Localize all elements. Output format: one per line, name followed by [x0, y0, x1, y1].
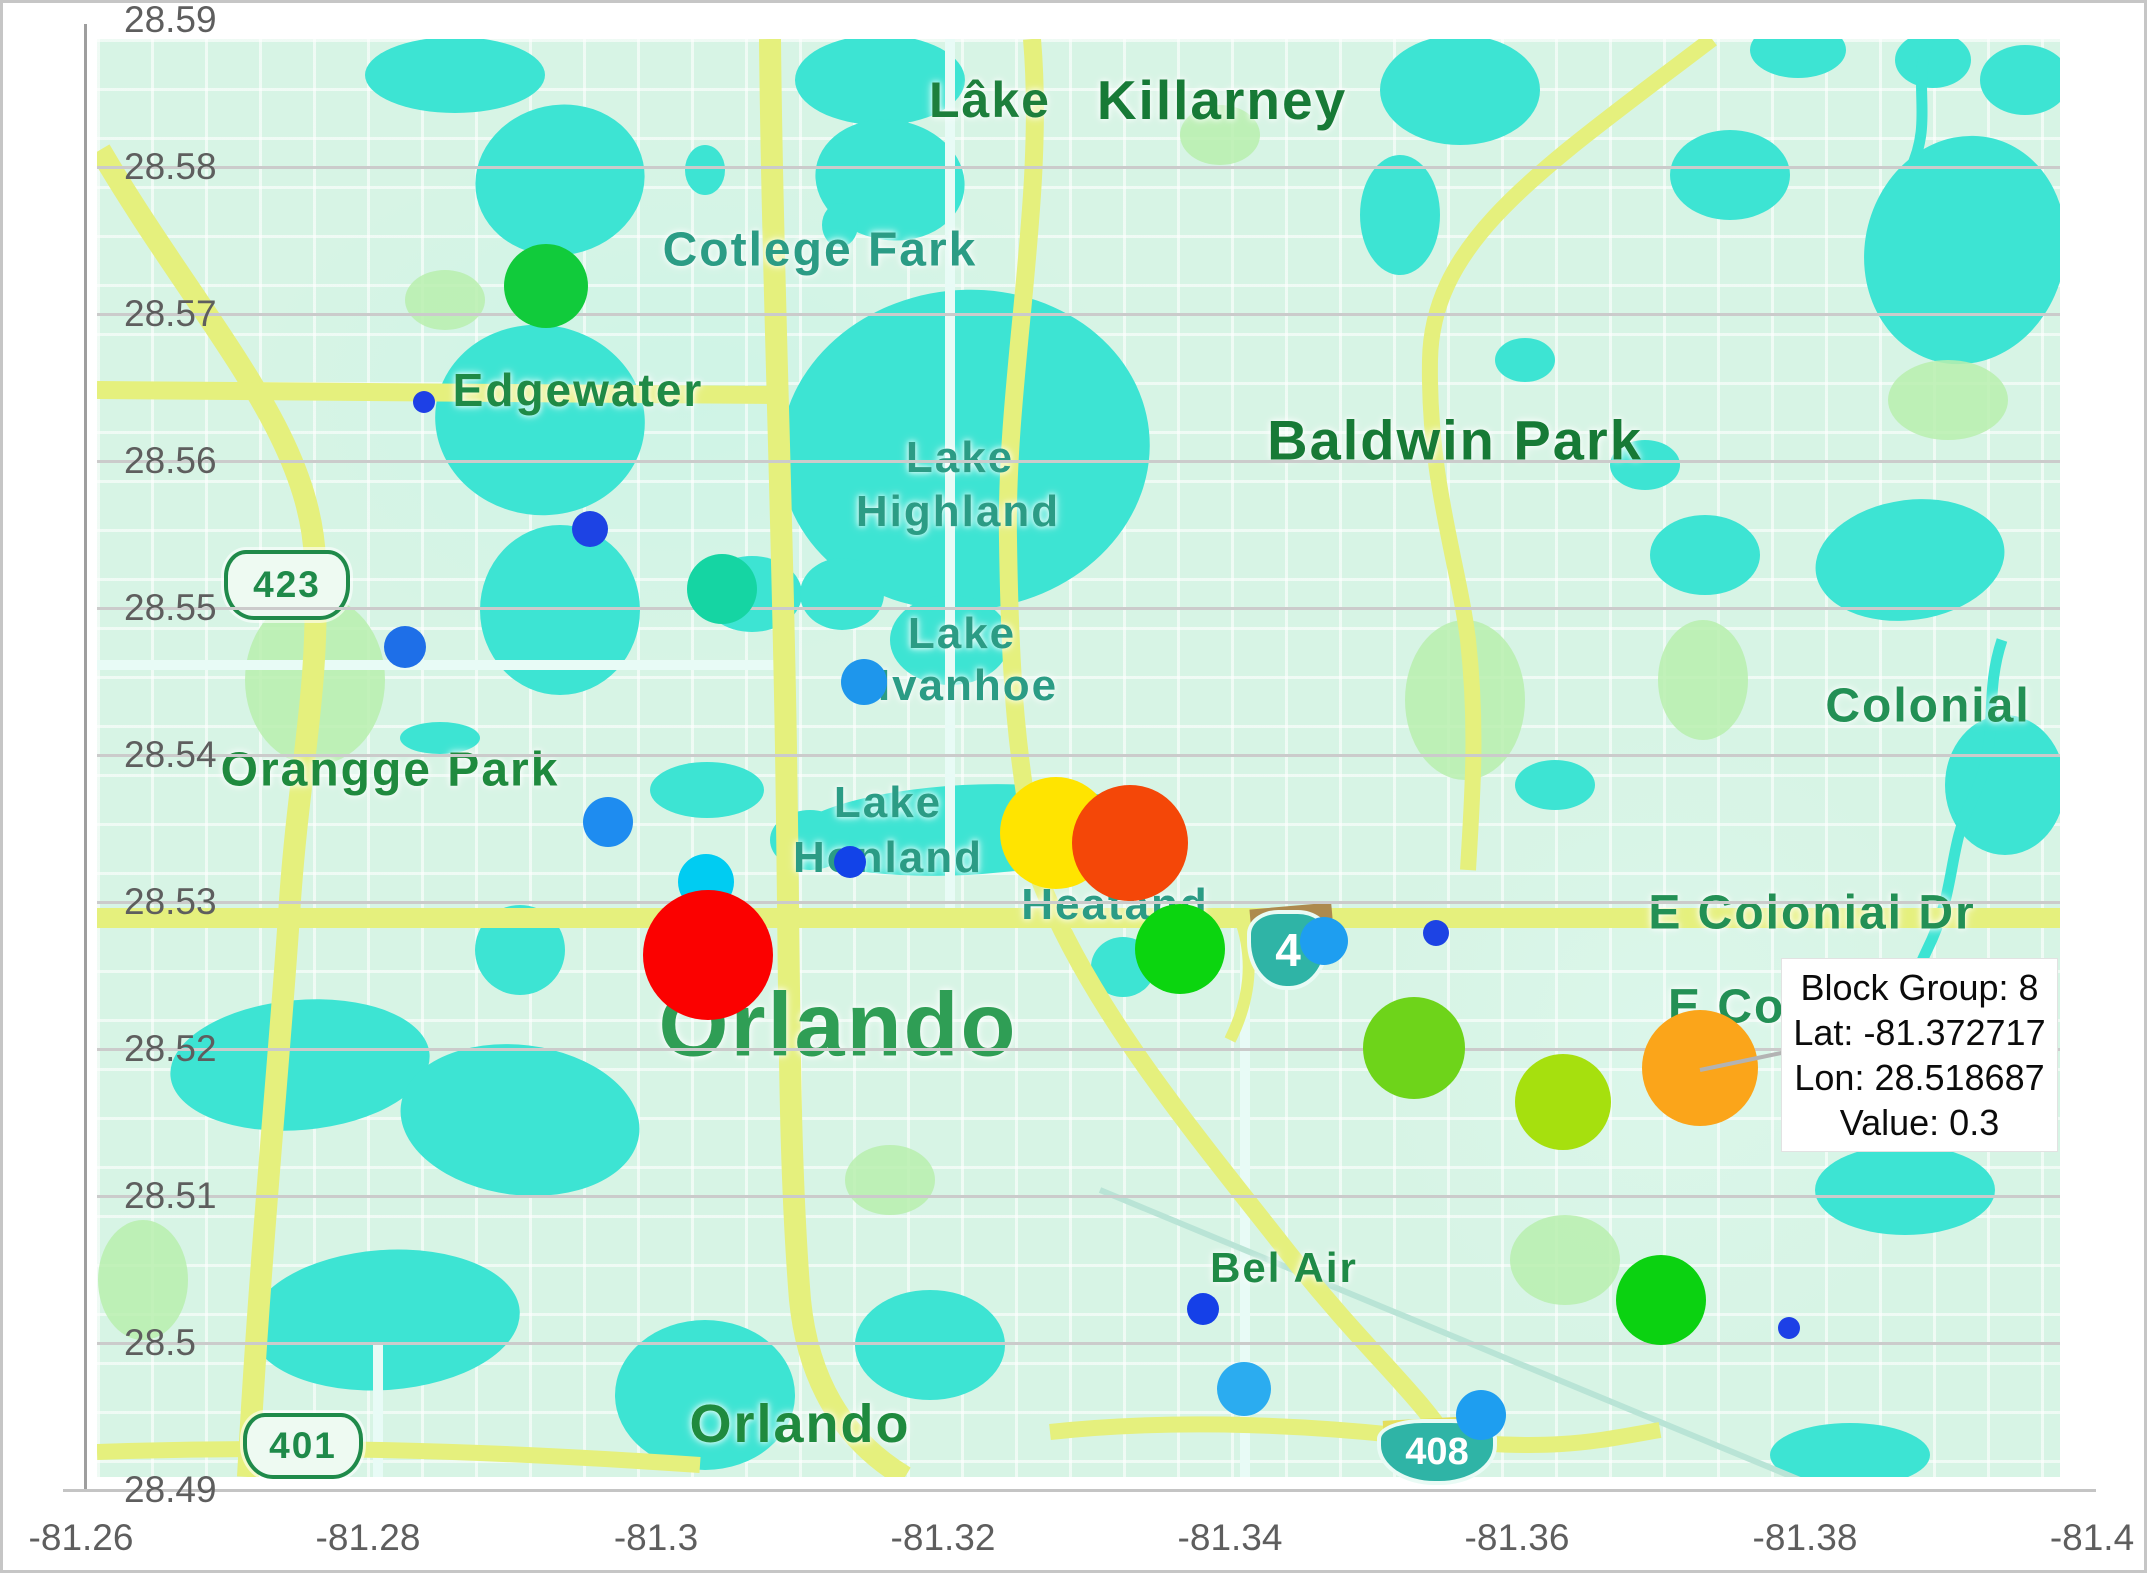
tooltip-block-group: Block Group: 8 — [1800, 970, 2038, 1006]
x-tick-label: -81.38 — [1753, 1517, 1858, 1559]
map-label: Lake — [834, 778, 942, 828]
figure: LâkeKillarneyCotlege FarkEdgewaterBaldwi… — [0, 0, 2147, 1573]
y-tick-label: 28.55 — [124, 587, 217, 629]
map-label: Lâke — [929, 71, 1051, 129]
data-point[interactable] — [1072, 785, 1188, 901]
data-point[interactable] — [1616, 1255, 1706, 1345]
tooltip: Block Group: 8 Lat: -81.372717 Lon: 28.5… — [1781, 958, 2058, 1152]
map-label: Bel Air — [1210, 1244, 1358, 1292]
gridline — [97, 313, 2060, 316]
y-tick-label: 28.57 — [124, 293, 217, 335]
map-label: Edgewater — [453, 363, 704, 417]
gridline — [97, 1195, 2060, 1198]
data-point[interactable] — [1217, 1362, 1271, 1416]
map-label: Cotlege Fark — [663, 223, 978, 278]
tooltip-lon: Lon: 28.518687 — [1794, 1060, 2044, 1096]
data-point[interactable] — [834, 846, 866, 878]
y-tick-label: 28.59 — [124, 0, 217, 41]
x-tick-label: -81.28 — [316, 1517, 421, 1559]
data-point[interactable] — [1778, 1317, 1800, 1339]
x-tick-label: -81.36 — [1465, 1517, 1570, 1559]
y-tick-label: 28.51 — [124, 1175, 217, 1217]
gridline — [97, 1342, 2060, 1345]
x-tick-label: -81.32 — [891, 1517, 996, 1559]
parks-layer — [98, 105, 2008, 1340]
gridline — [97, 901, 2060, 904]
data-point[interactable] — [687, 554, 757, 624]
gridline — [97, 460, 2060, 463]
map-label: Highland — [856, 487, 1060, 537]
data-point[interactable] — [583, 797, 633, 847]
y-tick-label: 28.56 — [124, 440, 217, 482]
y-axis-line — [84, 24, 87, 1491]
x-tick-label: -81.4 — [2050, 1517, 2134, 1559]
data-point[interactable] — [1135, 904, 1225, 994]
gridline — [97, 1048, 2060, 1051]
data-point[interactable] — [1423, 920, 1449, 946]
data-point[interactable] — [572, 511, 608, 547]
y-tick-label: 28.54 — [124, 734, 217, 776]
x-tick-label: -81.34 — [1178, 1517, 1283, 1559]
y-tick-label: 28.49 — [124, 1469, 217, 1511]
map-label: Colonial — [1825, 679, 2030, 734]
data-point[interactable] — [413, 391, 435, 413]
gridline — [97, 754, 2060, 757]
map-label: Orangge Park — [221, 743, 560, 798]
data-point[interactable] — [1187, 1293, 1219, 1325]
tooltip-lat: Lat: -81.372717 — [1793, 1015, 2045, 1051]
map-label: Lake — [908, 609, 1016, 659]
gridline — [97, 607, 2060, 610]
y-tick-label: 28.53 — [124, 881, 217, 923]
gridline — [97, 166, 2060, 169]
data-point[interactable] — [1300, 917, 1348, 965]
y-tick-label: 28.5 — [124, 1322, 196, 1364]
x-tick-label: -81.3 — [614, 1517, 698, 1559]
route-shield-401: 401 — [243, 1413, 363, 1479]
map-label: Ivanhoe — [878, 661, 1058, 711]
data-point[interactable] — [384, 626, 426, 668]
y-tick-label: 28.52 — [124, 1028, 217, 1070]
data-point[interactable] — [1363, 997, 1465, 1099]
data-point[interactable] — [1456, 1390, 1506, 1440]
data-point[interactable] — [841, 659, 887, 705]
x-tick-label: -81.26 — [29, 1517, 134, 1559]
data-point[interactable] — [504, 244, 588, 328]
map-label: Lake — [906, 433, 1014, 483]
map-label: E Colonial Dr — [1648, 886, 1975, 941]
map-label: Orlando — [689, 1393, 910, 1455]
map-label: Killarney — [1097, 68, 1347, 132]
data-point[interactable] — [643, 890, 773, 1020]
data-point[interactable] — [1515, 1054, 1611, 1150]
x-axis-line — [63, 1489, 2096, 1492]
tooltip-value: Value: 0.3 — [1840, 1105, 1999, 1141]
map-label: Honland — [793, 833, 983, 883]
y-tick-label: 28.58 — [124, 146, 217, 188]
